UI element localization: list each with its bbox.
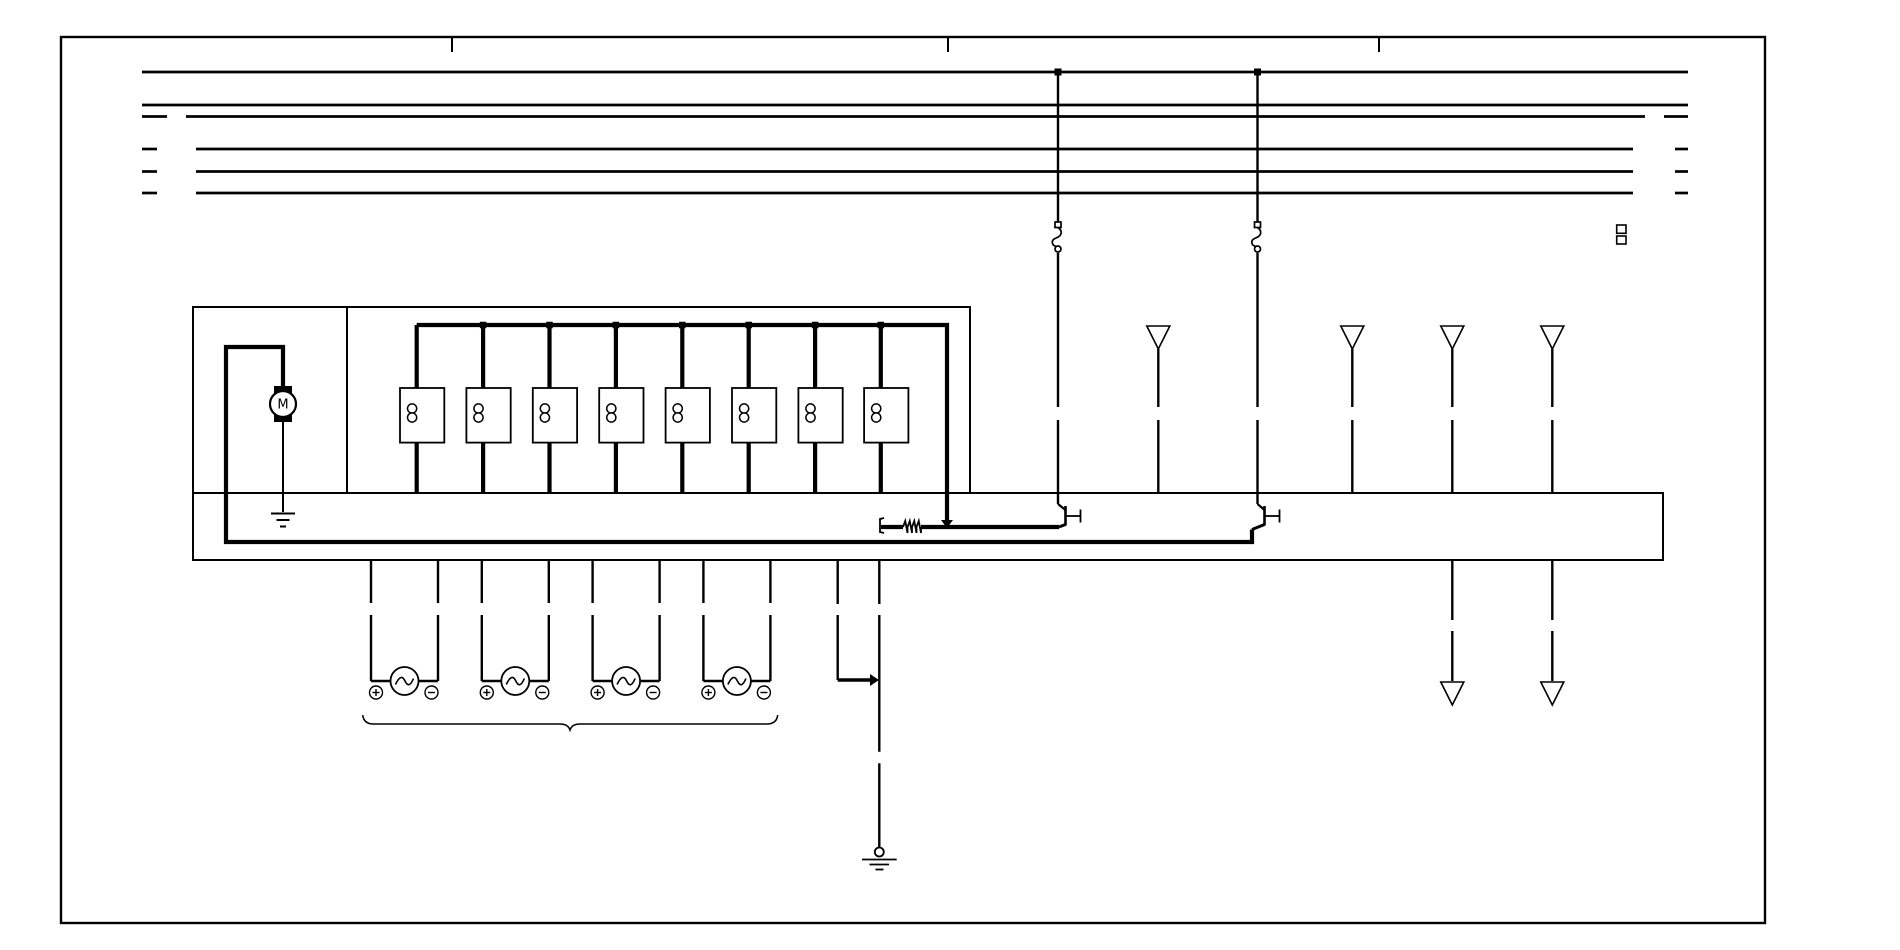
relay-coil-box xyxy=(599,388,643,443)
relay-coil-box xyxy=(466,388,510,443)
relay-coil-icon xyxy=(607,404,616,413)
wiring-diagram-svg: M xyxy=(0,0,1900,950)
relay-coil-icon xyxy=(474,413,483,422)
wiring-diagram-page: M xyxy=(0,0,1900,950)
relay-coil-icon xyxy=(806,413,815,422)
junction-dot xyxy=(679,322,686,329)
connector-square-icon xyxy=(1617,225,1626,233)
relay-coil-icon xyxy=(872,404,881,413)
relay-coil-icon xyxy=(408,413,417,422)
junction-dot xyxy=(812,322,819,329)
relay-coil-icon xyxy=(872,413,881,422)
relay-coil-box xyxy=(798,388,842,443)
relay-coil-icon xyxy=(806,404,815,413)
relay-coil-icon xyxy=(540,413,549,422)
junction-dot xyxy=(546,322,553,329)
motor-label: M xyxy=(277,398,288,413)
relay-coil-icon xyxy=(540,404,549,413)
relay-coil-box xyxy=(400,388,444,443)
relay-coil-icon xyxy=(474,404,483,413)
junction-dot xyxy=(613,322,620,329)
connector-square-icon xyxy=(1617,236,1626,244)
relay-coil-icon xyxy=(408,404,417,413)
relay-coil-box xyxy=(864,388,908,443)
relay-coil-icon xyxy=(740,404,749,413)
relay-coil-icon xyxy=(607,413,616,422)
relay-coil-box xyxy=(533,388,577,443)
junction-dot xyxy=(480,322,487,329)
relay-coil-icon xyxy=(740,413,749,422)
relay-coil-icon xyxy=(673,404,682,413)
relay-unit-box xyxy=(193,307,970,493)
relay-coil-box xyxy=(666,388,710,443)
junction-dot xyxy=(745,322,752,329)
ground-ring-icon xyxy=(875,848,884,857)
relay-coil-icon xyxy=(673,413,682,422)
junction-dot xyxy=(878,322,885,329)
relay-coil-box xyxy=(732,388,776,443)
